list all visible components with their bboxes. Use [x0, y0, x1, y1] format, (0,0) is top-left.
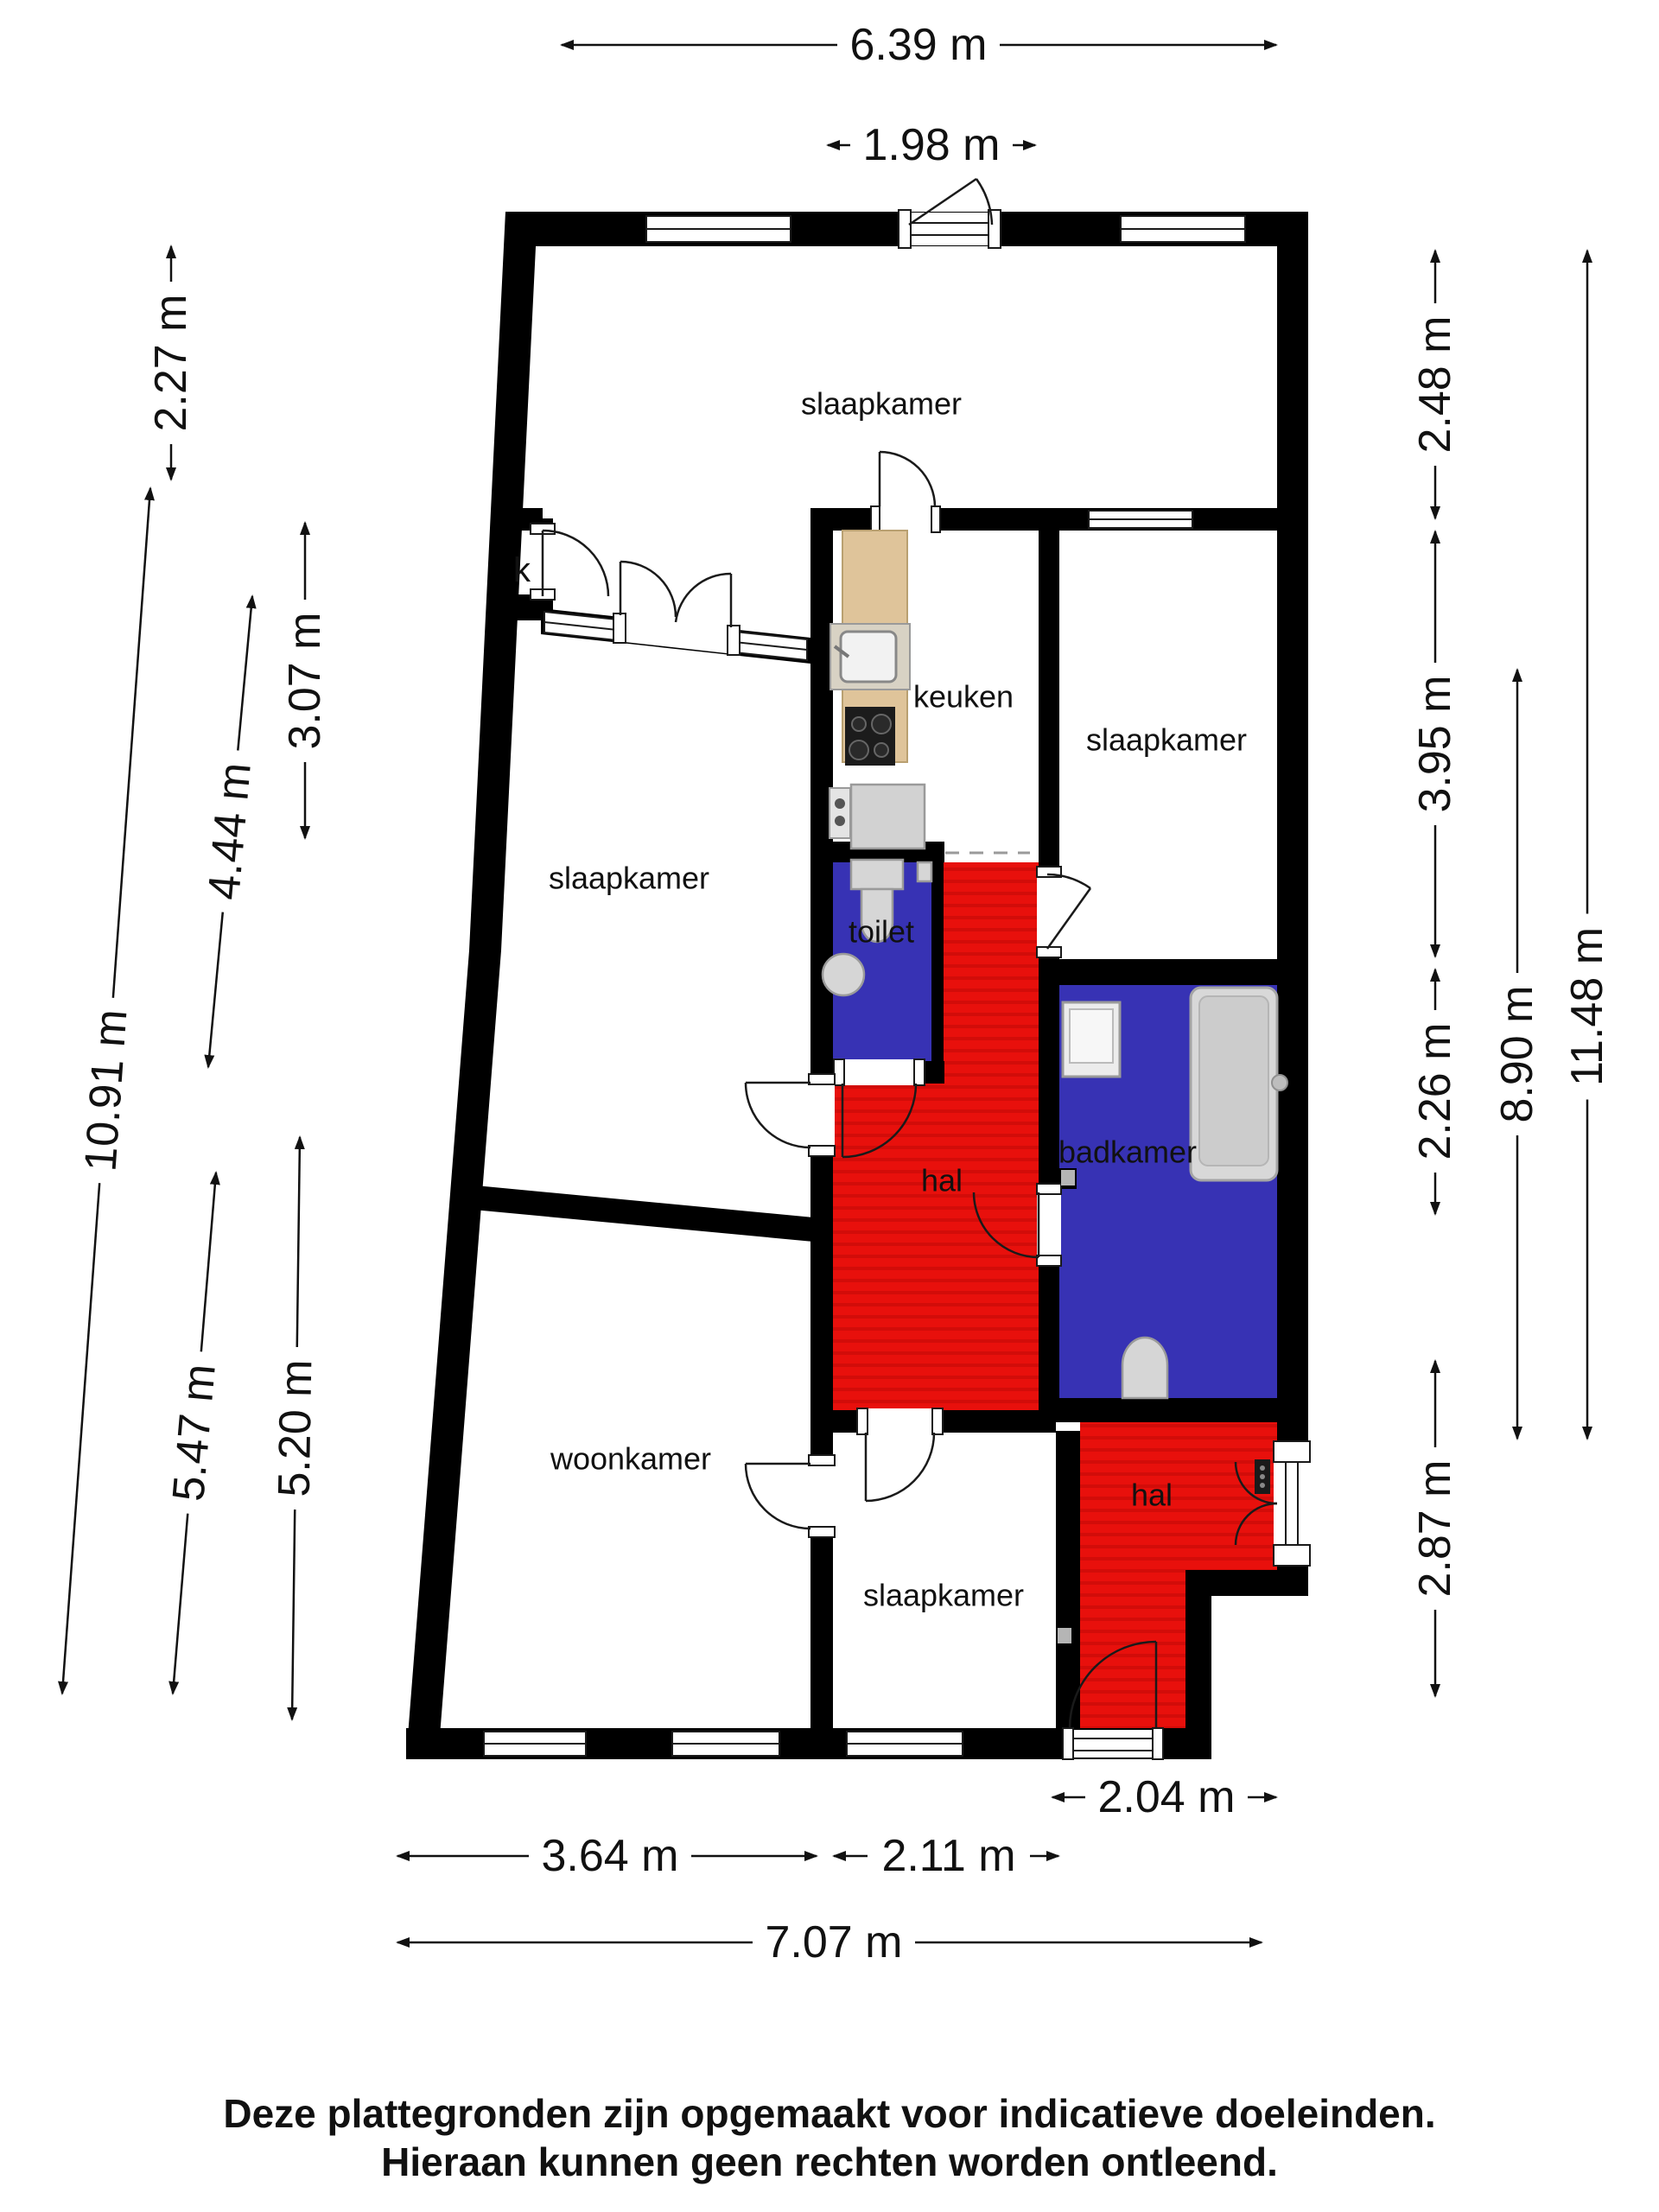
dimension-right-395: 3.95 m [1410, 531, 1460, 957]
door-hall-right-bedroom [1037, 867, 1090, 957]
dimension-bottom-707: 7.07 m [397, 1917, 1262, 1967]
dimension-bottom-364: 3.64 m [397, 1831, 817, 1881]
disclaimer-line-1: Deze plattegronden zijn opgemaakt voor i… [223, 2091, 1435, 2136]
kitchen-fridge [851, 785, 925, 849]
wall-badkamer-bottom [1056, 1398, 1277, 1422]
wall-toilet-right [931, 862, 944, 1061]
dimension-bottom-204: 2.04 m [1052, 1772, 1276, 1822]
dimension-line [173, 1514, 188, 1694]
dimension-line [62, 1183, 99, 1694]
wall-bedroom-bottom-right [1056, 1431, 1080, 1732]
door-hall-middle-bedroom [746, 1074, 835, 1156]
radiator-small-2 [1058, 1628, 1071, 1643]
dimension-label-right-226: 2.26 m [1410, 1023, 1460, 1160]
dimension-label-bottom-707: 7.07 m [766, 1917, 903, 1967]
intercom-panel [1255, 1459, 1270, 1494]
dimension-line [238, 596, 252, 750]
room-label-slaapkamer-bottom: slaapkamer [863, 1578, 1024, 1613]
dimension-line [297, 1137, 300, 1347]
wall-badkamer-top [1056, 959, 1277, 985]
dimension-top-639: 6.39 m [562, 20, 1276, 70]
disclaimer: Deze plattegronden zijn opgemaakt voor i… [223, 2091, 1435, 2184]
kitchen-sink [830, 624, 910, 690]
dimension-left-547: 5.47 m [163, 1173, 226, 1694]
dimension-left-1091: 10.91 m [62, 488, 150, 1694]
dimension-label-left-547: 5.47 m [163, 1362, 226, 1503]
dimension-left-444: 4.44 m [199, 596, 261, 1067]
room-label-toilet: toilet [849, 914, 914, 950]
toilet-sink [823, 954, 864, 995]
dimension-label-bottom-364: 3.64 m [542, 1831, 679, 1881]
dimension-right-248: 2.48 m [1410, 251, 1460, 518]
radiator-small-1 [1061, 1170, 1075, 1185]
window-top-2 [1121, 216, 1245, 242]
room-label-slaapkamer-middle: slaapkamer [549, 861, 709, 896]
dimension-line [201, 1173, 216, 1351]
door-woonkamer-bedroom [746, 1455, 835, 1537]
dimension-left-227: 2.27 m [146, 246, 196, 480]
door-top-balcony [899, 179, 1001, 248]
wall-step-right [1185, 1570, 1308, 1596]
wall-left-outer [406, 212, 537, 1758]
door-bedroom-top [871, 452, 940, 532]
room-label-closet-k: k [513, 551, 531, 589]
wall-right-outer [1277, 212, 1308, 1570]
dimension-label-left-307: 3.07 m [280, 613, 330, 750]
door-hall-bottom-bedroom [857, 1408, 943, 1501]
window-bottom-2 [672, 1732, 779, 1756]
room-label-woonkamer: woonkamer [550, 1441, 711, 1477]
dimension-line [113, 488, 150, 998]
bathtub [1191, 988, 1287, 1180]
door-double-band [544, 562, 807, 660]
badkamer-washer [1063, 1002, 1120, 1077]
dimension-label-right-248: 2.48 m [1410, 316, 1460, 454]
kitchen-dishwasher [829, 788, 850, 838]
dimension-right-1148: 11.48 m [1562, 251, 1612, 1439]
floorplan-drawing: slaapkamerkkeukenslaapkamerslaapkamertoi… [0, 0, 1659, 2212]
disclaimer-line-2: Hieraan kunnen geen rechten worden ontle… [381, 2139, 1278, 2184]
dimension-left-520: 5.20 m [270, 1137, 322, 1719]
room-label-slaapkamer-right: slaapkamer [1086, 722, 1247, 758]
dimension-right-890: 8.90 m [1492, 670, 1542, 1439]
dimension-label-right-1148: 11.48 m [1562, 927, 1612, 1086]
dimension-right-287: 2.87 m [1410, 1361, 1460, 1696]
window-right-bedroom-top [1089, 511, 1192, 528]
dimension-right-226: 2.26 m [1410, 969, 1460, 1214]
window-bottom-1 [484, 1732, 586, 1756]
door-closet-k [531, 524, 608, 600]
room-label-hal-entree: hal [1131, 1478, 1173, 1513]
dimension-label-right-287: 2.87 m [1410, 1460, 1460, 1598]
dimension-label-left-520: 5.20 m [270, 1359, 322, 1497]
dimension-label-left-1091: 10.91 m [76, 1007, 137, 1173]
badkamer-sink [1122, 1338, 1167, 1398]
dimension-label-left-227: 2.27 m [146, 295, 196, 432]
room-label-slaapkamer-top: slaapkamer [801, 386, 962, 422]
dimension-top-198: 1.98 m [828, 120, 1035, 170]
dimension-line [292, 1510, 295, 1719]
room-label-hal-boven: hal [921, 1163, 963, 1198]
kitchen-stove [845, 707, 895, 766]
room-label-badkamer: badkamer [1058, 1135, 1197, 1170]
floorplan-page: slaapkamerkkeukenslaapkamerslaapkamertoi… [0, 0, 1659, 2212]
wall-woonkamer-top [464, 1185, 823, 1243]
dimension-label-left-444: 4.44 m [199, 760, 261, 901]
window-bottom-3 [847, 1732, 963, 1756]
dimension-label-top-198: 1.98 m [863, 120, 1001, 170]
dimension-label-right-890: 8.90 m [1492, 986, 1542, 1123]
dimension-label-bottom-211: 2.11 m [881, 1831, 1015, 1881]
dimension-left-307: 3.07 m [280, 523, 330, 838]
dimension-label-right-395: 3.95 m [1410, 676, 1460, 813]
dimension-line [208, 912, 223, 1067]
dimension-label-top-639: 6.39 m [850, 20, 988, 70]
dimension-bottom-211: 2.11 m [834, 1831, 1058, 1881]
dimension-label-bottom-204: 2.04 m [1098, 1772, 1236, 1822]
room-label-keuken: keuken [913, 679, 1014, 715]
window-top-1 [646, 216, 791, 242]
